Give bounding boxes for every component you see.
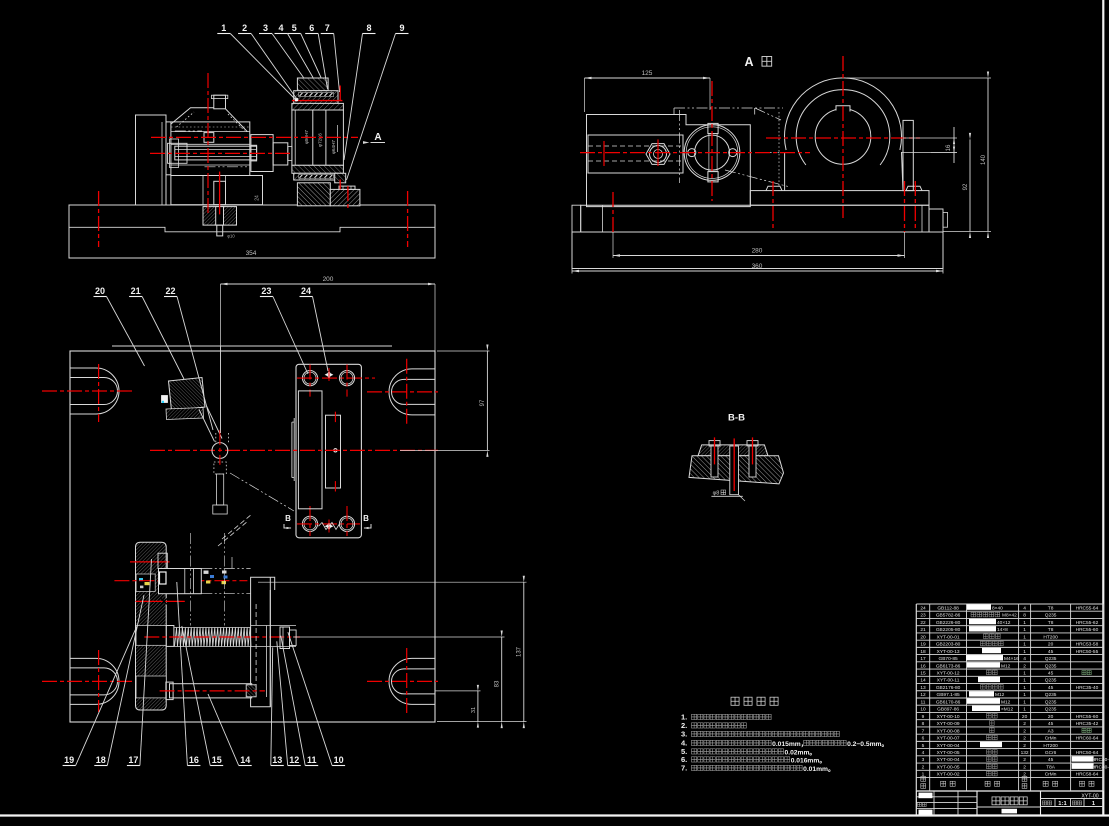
- svg-text:GB2226-80: GB2226-80: [936, 620, 961, 626]
- svg-text:21: 21: [920, 627, 926, 633]
- svg-text:0.015mm，: 0.015mm，: [772, 741, 807, 748]
- svg-text:M12: M12: [995, 692, 1005, 698]
- svg-text:1: 1: [1023, 642, 1026, 648]
- svg-text:15: 15: [212, 755, 222, 765]
- svg-text:14: 14: [240, 755, 250, 765]
- svg-text:GB112-88: GB112-88: [937, 605, 959, 611]
- svg-text:24: 24: [920, 605, 926, 611]
- svg-text:200: 200: [323, 276, 334, 283]
- svg-text:15: 15: [920, 670, 926, 676]
- svg-text:HT200: HT200: [1043, 634, 1058, 640]
- svg-text:45: 45: [1048, 685, 1054, 691]
- svg-text:HRC58-64: HRC58-64: [1076, 772, 1099, 778]
- svg-text:GB2176-80: GB2176-80: [936, 685, 961, 691]
- svg-text:16: 16: [189, 755, 199, 765]
- svg-text:14: 14: [920, 678, 926, 684]
- svg-text:4: 4: [922, 750, 925, 756]
- svg-text:CrMn: CrMn: [1045, 772, 1057, 778]
- svg-text:8×40: 8×40: [992, 605, 1003, 611]
- svg-text:3: 3: [263, 23, 268, 33]
- svg-text:GB70-85: GB70-85: [938, 656, 958, 662]
- svg-text:2: 2: [1023, 663, 1026, 669]
- svg-text:XYT-00-05: XYT-00-05: [937, 764, 960, 770]
- svg-text:20: 20: [95, 286, 105, 296]
- svg-text:18: 18: [920, 649, 926, 655]
- svg-text:13: 13: [272, 755, 282, 765]
- svg-text:T8A: T8A: [1046, 764, 1056, 770]
- svg-text:4: 4: [1023, 656, 1026, 662]
- svg-text:21: 21: [131, 286, 141, 296]
- svg-text:2: 2: [1023, 721, 1026, 727]
- svg-text:7: 7: [325, 23, 330, 33]
- svg-text:HRC55-64: HRC55-64: [1076, 605, 1099, 611]
- svg-text:10: 10: [920, 707, 926, 713]
- svg-text:354: 354: [246, 250, 257, 257]
- svg-text:18: 18: [96, 755, 106, 765]
- svg-text:GCr6: GCr6: [1045, 750, 1057, 756]
- svg-text:2: 2: [1023, 757, 1026, 763]
- svg-text:6: 6: [309, 23, 314, 33]
- svg-text:2: 2: [242, 23, 247, 33]
- svg-text:HRC50-55: HRC50-55: [1076, 649, 1099, 655]
- svg-text:HRC55-60: HRC55-60: [1076, 627, 1099, 633]
- svg-text:B-B: B-B: [728, 413, 745, 424]
- svg-text:20: 20: [920, 634, 926, 640]
- svg-text:2: 2: [1023, 764, 1026, 770]
- svg-text:Q235: Q235: [1045, 707, 1057, 713]
- svg-text:2: 2: [1023, 743, 1026, 749]
- svg-text:T8: T8: [1048, 620, 1054, 626]
- svg-text:XYT-00-10: XYT-00-10: [937, 714, 960, 720]
- svg-text:HRC35-42: HRC35-42: [1076, 721, 1099, 727]
- svg-text:GB97.1-85: GB97.1-85: [936, 692, 960, 698]
- svg-text:6: 6: [922, 736, 925, 742]
- svg-text:137: 137: [517, 646, 523, 657]
- svg-text:Q235: Q235: [1045, 663, 1057, 669]
- svg-text:4: 4: [278, 23, 283, 33]
- svg-text:4: 4: [1023, 605, 1026, 611]
- svg-text:45: 45: [1048, 670, 1054, 676]
- svg-text:3: 3: [922, 757, 925, 763]
- svg-text:14×8: 14×8: [997, 627, 1008, 633]
- svg-text:1: 1: [1023, 649, 1026, 655]
- svg-text:5: 5: [292, 23, 297, 33]
- svg-text:A3: A3: [1048, 728, 1054, 734]
- svg-text:0.01mm。: 0.01mm。: [803, 766, 835, 773]
- svg-text:1: 1: [1023, 634, 1026, 640]
- svg-text:HRC35-40: HRC35-40: [1076, 685, 1099, 691]
- svg-text:1: 1: [1023, 670, 1026, 676]
- svg-text:19: 19: [920, 642, 926, 648]
- svg-text:XYT-00: XYT-00: [1081, 794, 1098, 800]
- svg-text:HRC55-62: HRC55-62: [1076, 620, 1099, 626]
- svg-text:22: 22: [920, 620, 926, 626]
- svg-text:1: 1: [1023, 699, 1026, 705]
- svg-text:GB6170-86: GB6170-86: [936, 699, 961, 705]
- svg-text:GB2203-80: GB2203-80: [936, 642, 961, 648]
- svg-text:B: B: [363, 514, 369, 523]
- svg-text:7: 7: [922, 728, 925, 734]
- svg-text:A: A: [744, 55, 753, 69]
- svg-text:M4×16: M4×16: [1004, 656, 1019, 662]
- svg-text:7.: 7.: [681, 764, 687, 773]
- svg-text:8: 8: [366, 23, 371, 33]
- svg-text:B: B: [285, 514, 291, 523]
- svg-text:360: 360: [752, 263, 763, 270]
- svg-text:19: 19: [64, 755, 74, 765]
- svg-text:132: 132: [1021, 750, 1029, 756]
- svg-text:20: 20: [1048, 642, 1054, 648]
- svg-text:HRC40-45: HRC40-45: [1092, 764, 1109, 770]
- svg-text:Q235: Q235: [1045, 678, 1057, 684]
- svg-text:11: 11: [921, 699, 926, 705]
- svg-text:HT200: HT200: [1043, 743, 1058, 749]
- svg-text:24: 24: [301, 286, 311, 296]
- svg-text:22: 22: [165, 286, 175, 296]
- svg-text:Q235: Q235: [1045, 699, 1057, 705]
- svg-text:GB2205-80: GB2205-80: [936, 627, 961, 633]
- svg-text:40×12: 40×12: [997, 620, 1011, 626]
- svg-text:12: 12: [920, 692, 926, 698]
- svg-text:φ72K6: φ72K6: [318, 133, 323, 147]
- svg-text:XYT-00-13: XYT-00-13: [937, 649, 960, 655]
- svg-text:12: 12: [289, 755, 299, 765]
- svg-text:23: 23: [261, 286, 271, 296]
- svg-text:XYT-00-11: XYT-00-11: [937, 678, 960, 684]
- svg-text:GB6173-86: GB6173-86: [936, 663, 961, 669]
- svg-text:HRC53-58: HRC53-58: [1076, 642, 1099, 648]
- svg-text:φ80H7: φ80H7: [304, 130, 309, 144]
- svg-text:20: 20: [1022, 714, 1028, 720]
- svg-text:24: 24: [255, 195, 261, 201]
- svg-text:2: 2: [1023, 736, 1026, 742]
- svg-text:T8: T8: [1048, 605, 1054, 611]
- svg-text:97: 97: [480, 399, 486, 406]
- svg-text:45: 45: [1048, 757, 1054, 763]
- svg-text:HRC55-60: HRC55-60: [1076, 714, 1099, 720]
- svg-text:M12: M12: [1001, 663, 1011, 669]
- svg-text:1: 1: [1023, 620, 1026, 626]
- svg-text:GB5782-86: GB5782-86: [936, 613, 961, 619]
- svg-text:XYT-00-12: XYT-00-12: [937, 670, 960, 676]
- svg-text:140: 140: [981, 154, 987, 165]
- svg-text:0.2−0.5mm。: 0.2−0.5mm。: [847, 741, 888, 748]
- svg-text:1: 1: [221, 23, 226, 33]
- svg-text:XYT-00-04: XYT-00-04: [937, 757, 960, 763]
- svg-text:2: 2: [1023, 728, 1026, 734]
- svg-text:17: 17: [128, 755, 138, 765]
- svg-text:280: 280: [752, 248, 763, 255]
- svg-text:83: 83: [495, 680, 501, 687]
- svg-text:45: 45: [1048, 721, 1054, 727]
- svg-text:φ8: φ8: [713, 491, 720, 497]
- svg-text:XYT-00-01: XYT-00-01: [937, 634, 960, 640]
- svg-text:8: 8: [1023, 613, 1026, 619]
- svg-text:Q235: Q235: [1045, 692, 1057, 698]
- svg-text:Q235: Q235: [1045, 656, 1057, 662]
- svg-text:0.02mm。: 0.02mm。: [785, 749, 817, 756]
- svg-text:31: 31: [471, 707, 477, 713]
- svg-text:9: 9: [922, 714, 925, 720]
- svg-text:M8×42: M8×42: [1002, 613, 1017, 619]
- svg-text:M12: M12: [1001, 699, 1011, 705]
- svg-text:1: 1: [1023, 678, 1026, 684]
- svg-text:17: 17: [920, 656, 926, 662]
- svg-text:16: 16: [946, 144, 952, 151]
- svg-text:5: 5: [922, 743, 925, 749]
- svg-text:φ64H7: φ64H7: [331, 140, 336, 154]
- svg-text:T8: T8: [1048, 627, 1054, 633]
- svg-text:92: 92: [963, 183, 969, 190]
- svg-text:11: 11: [307, 755, 317, 765]
- svg-text:HRC40-45: HRC40-45: [1092, 757, 1109, 763]
- svg-text:CrMn: CrMn: [1045, 736, 1057, 742]
- svg-text:XYT-00-07: XYT-00-07: [937, 736, 960, 742]
- svg-text:23: 23: [920, 613, 926, 619]
- svg-text:1: 1: [1023, 685, 1026, 691]
- svg-text:10: 10: [334, 755, 344, 765]
- svg-text:1: 1: [1023, 692, 1026, 698]
- svg-text:XYT-00-02: XYT-00-02: [937, 772, 960, 778]
- svg-text:XYT-00-09: XYT-00-09: [937, 721, 960, 727]
- svg-text:0.016mm。: 0.016mm。: [791, 757, 826, 764]
- svg-text:XYT-00-08: XYT-00-08: [937, 728, 960, 734]
- svg-text:XYT-00-05: XYT-00-05: [937, 750, 960, 756]
- svg-text:9: 9: [399, 23, 404, 33]
- svg-text:45: 45: [1048, 649, 1054, 655]
- svg-text:GB897-86: GB897-86: [937, 707, 959, 713]
- svg-text:8: 8: [922, 721, 925, 727]
- svg-text:HRC50-64: HRC50-64: [1076, 750, 1099, 756]
- svg-text:1:1: 1:1: [1058, 801, 1067, 807]
- svg-text:20: 20: [1048, 714, 1054, 720]
- svg-text:Q235: Q235: [1045, 613, 1057, 619]
- svg-text:XYT-00-04: XYT-00-04: [937, 743, 960, 749]
- svg-text:2: 2: [922, 764, 925, 770]
- svg-text:1: 1: [1023, 707, 1026, 713]
- svg-text:16: 16: [920, 663, 926, 669]
- svg-text:13: 13: [920, 685, 926, 691]
- svg-text:3.: 3.: [681, 730, 687, 739]
- svg-text:125: 125: [642, 70, 653, 77]
- svg-text:1: 1: [1023, 627, 1026, 633]
- svg-text:HRC60-64: HRC60-64: [1076, 736, 1099, 742]
- svg-text:×M12: ×M12: [1001, 707, 1013, 713]
- svg-text:A: A: [374, 132, 381, 143]
- svg-text:φ10: φ10: [227, 234, 235, 239]
